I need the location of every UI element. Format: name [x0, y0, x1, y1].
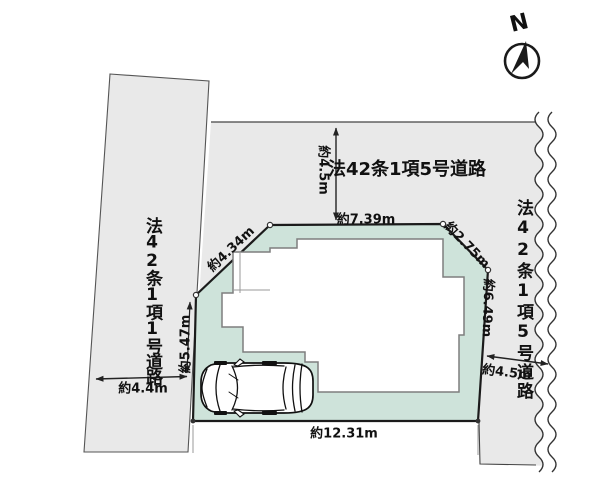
lot-vertex-marker	[476, 419, 481, 424]
car-illustration	[201, 359, 313, 417]
dim-lot-bottom: 約12.31m	[310, 423, 378, 442]
dim-road-left-width: 約4.4m	[118, 378, 168, 397]
lot-vertex-marker	[191, 419, 196, 424]
compass-icon	[505, 41, 539, 78]
dim-lot-top: 約7.39m	[337, 209, 396, 228]
dim-lot-right: 約6.49m	[478, 278, 499, 337]
road-left-label: 法42条1項1号道路	[140, 217, 165, 384]
site-plan-page: 法42条1項5号道路 法42条1項1号道路 法42条1項5号道路 約4.5m 約…	[0, 0, 600, 477]
dim-lot-left: 約5.47m	[175, 315, 194, 374]
car-wheel	[262, 361, 277, 365]
car-wheel	[214, 411, 227, 415]
dim-road-top-width: 約4.5m	[316, 145, 335, 195]
site-plan-drawing	[0, 0, 600, 477]
lot-vertex-marker	[267, 222, 272, 227]
map-break-mask	[535, 112, 600, 472]
lot-vertex-marker	[485, 267, 490, 272]
car-wheel	[214, 361, 227, 365]
lot-vertex-marker	[193, 292, 198, 297]
road-top-label: 法42条1項5号道路	[328, 155, 486, 181]
car-wheel	[262, 411, 277, 415]
